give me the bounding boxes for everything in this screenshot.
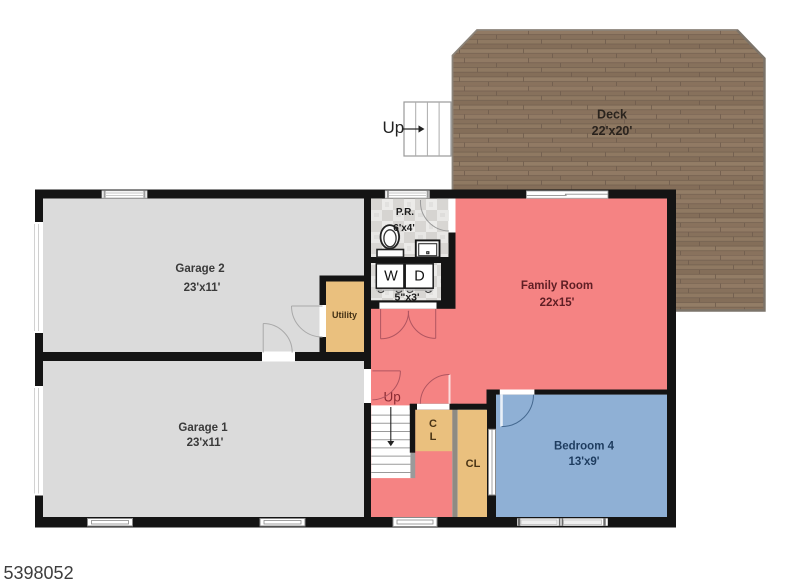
svg-text:W: W — [384, 269, 398, 285]
svg-text:CL: CL — [466, 458, 481, 470]
svg-text:Bedroom 4: Bedroom 4 — [554, 441, 615, 453]
svg-text:5"x3': 5"x3' — [395, 292, 420, 304]
svg-text:22x15': 22x15' — [540, 297, 575, 309]
svg-text:Family Room: Family Room — [521, 280, 593, 292]
svg-text:Utility: Utility — [332, 310, 357, 320]
svg-text:23'x11': 23'x11' — [187, 437, 224, 449]
svg-text:13'x9': 13'x9' — [568, 456, 599, 468]
svg-text:Garage 1: Garage 1 — [178, 422, 228, 434]
svg-text:Deck: Deck — [597, 108, 627, 122]
svg-text:C: C — [429, 418, 437, 430]
svg-text:22'x20': 22'x20' — [592, 124, 633, 138]
svg-text:6'x4': 6'x4' — [393, 223, 414, 234]
svg-text:5398052: 5398052 — [4, 563, 74, 583]
svg-text:Up: Up — [383, 118, 405, 137]
svg-text:P.R.: P.R. — [396, 207, 414, 218]
svg-text:23'x11': 23'x11' — [184, 282, 221, 294]
svg-text:D: D — [414, 269, 424, 285]
svg-text:L: L — [430, 431, 437, 443]
svg-text:Garage 2: Garage 2 — [175, 263, 224, 275]
